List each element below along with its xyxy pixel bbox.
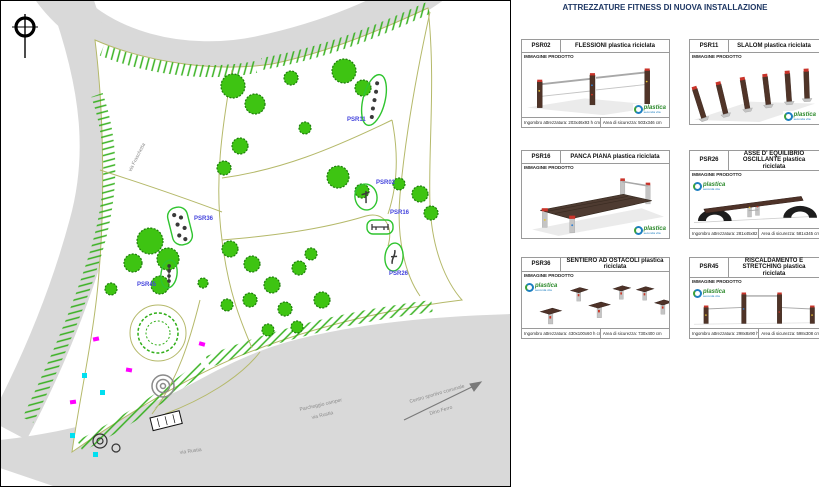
product-title: PANCA PIANA plastica riciclata [561,151,669,163]
image-label: IMMAGINE PRODOTTO [522,164,669,172]
map-canvas: PSR11 PSR02 PSR16 PSR36 PSR45 PSR26 via … [0,0,511,487]
product-title: SENTIERO AD OSTACOLI plastica riciclata [561,258,669,271]
product-code: PSR02 [522,40,561,52]
psv-logo-icon [634,105,643,114]
outlined-tree-icon [138,313,178,353]
product-title: FLESSIONI plastica riciclata [561,40,669,52]
psv-logo: plastica seconda vita [783,111,817,122]
product-title: SLALOM plastica riciclata [729,40,819,52]
site-plan-map: PSR11 PSR02 PSR16 PSR36 PSR45 PSR26 via … [0,0,511,487]
product-card-psr11: PSR11 SLALOM plastica riciclata IMMAGINE… [689,39,819,125]
image-label: IMMAGINE PRODOTTO [690,278,819,286]
footprint-spec: Ingombro attrezzatura: 203x46x93 h cm [522,118,601,127]
product-card-psr02: PSR02 FLESSIONI plastica riciclata IMMAG… [521,39,670,128]
psv-logo: plastica seconda vita [692,288,726,299]
product-card-psr26: PSR26 ASSE D' EQUILIBRIO OSCILLANTE plas… [689,150,819,239]
footprint-spec: Ingombro attrezzatura: 298x8x90 h cm [690,329,759,338]
footprint-spec: Ingombro attrezzatura: 281x45x82 h cm [690,229,759,238]
product-code: PSR36 [522,258,561,271]
label-psr02: PSR02 [376,180,396,186]
product-code: PSR26 [690,151,729,170]
label-psr16: PSR16 [390,210,410,216]
psv-logo: plastica seconda vita [633,104,667,115]
image-label: IMMAGINE PRODOTTO [522,272,669,280]
safety-area-spec: Area di sicurezza: 581x345 cm [759,229,819,238]
product-card-psr36: PSR36 SENTIERO AD OSTACOLI plastica rici… [521,257,670,339]
label-psr11: PSR11 [347,117,366,123]
label-psr26: PSR26 [389,271,409,277]
north-arrow-icon [12,14,38,58]
image-label: IMMAGINE PRODOTTO [522,53,669,61]
product-card-psr45: PSR45 RISCALDAMENTO E STRETCHING plastic… [689,257,819,339]
product-code: PSR45 [690,258,729,277]
image-label: IMMAGINE PRODOTTO [690,53,819,61]
product-card-psr16: PSR16 PANCA PIANA plastica riciclata IMM… [521,150,670,239]
product-title: RISCALDAMENTO E STRETCHING plastica rici… [729,258,819,277]
psv-logo-icon [634,226,643,235]
psv-logo: plastica seconda vita [692,181,726,192]
psv-logo-icon [525,283,534,292]
psv-logo-icon [693,289,702,298]
label-psr36: PSR36 [194,216,214,222]
product-title: ASSE D' EQUILIBRIO OSCILLANTE plastica r… [729,151,819,170]
product-code: PSR11 [690,40,729,52]
safety-area-spec: Area di sicurezza: 503x346 cm [601,118,669,127]
product-panel: ATTREZZATURE FITNESS DI NUOVA INSTALLAZI… [511,0,819,487]
label-psr45: PSR45 [137,282,157,288]
panel-title: ATTREZZATURE FITNESS DI NUOVA INSTALLAZI… [555,3,775,13]
psv-logo: plastica seconda vita [524,282,558,293]
footprint-spec: Ingombro attrezzatura: 430x100x60 h cm [522,329,601,338]
safety-area-spec: Area di sicurezza: 598x308 cm [759,329,819,338]
safety-area-spec: Area di sicurezza: 730x400 cm [601,329,669,338]
psv-logo: plastica seconda vita [633,225,667,236]
psv-logo-icon [784,112,793,121]
psv-logo-icon [693,182,702,191]
product-code: PSR16 [522,151,561,163]
image-label: IMMAGINE PRODOTTO [690,171,819,179]
